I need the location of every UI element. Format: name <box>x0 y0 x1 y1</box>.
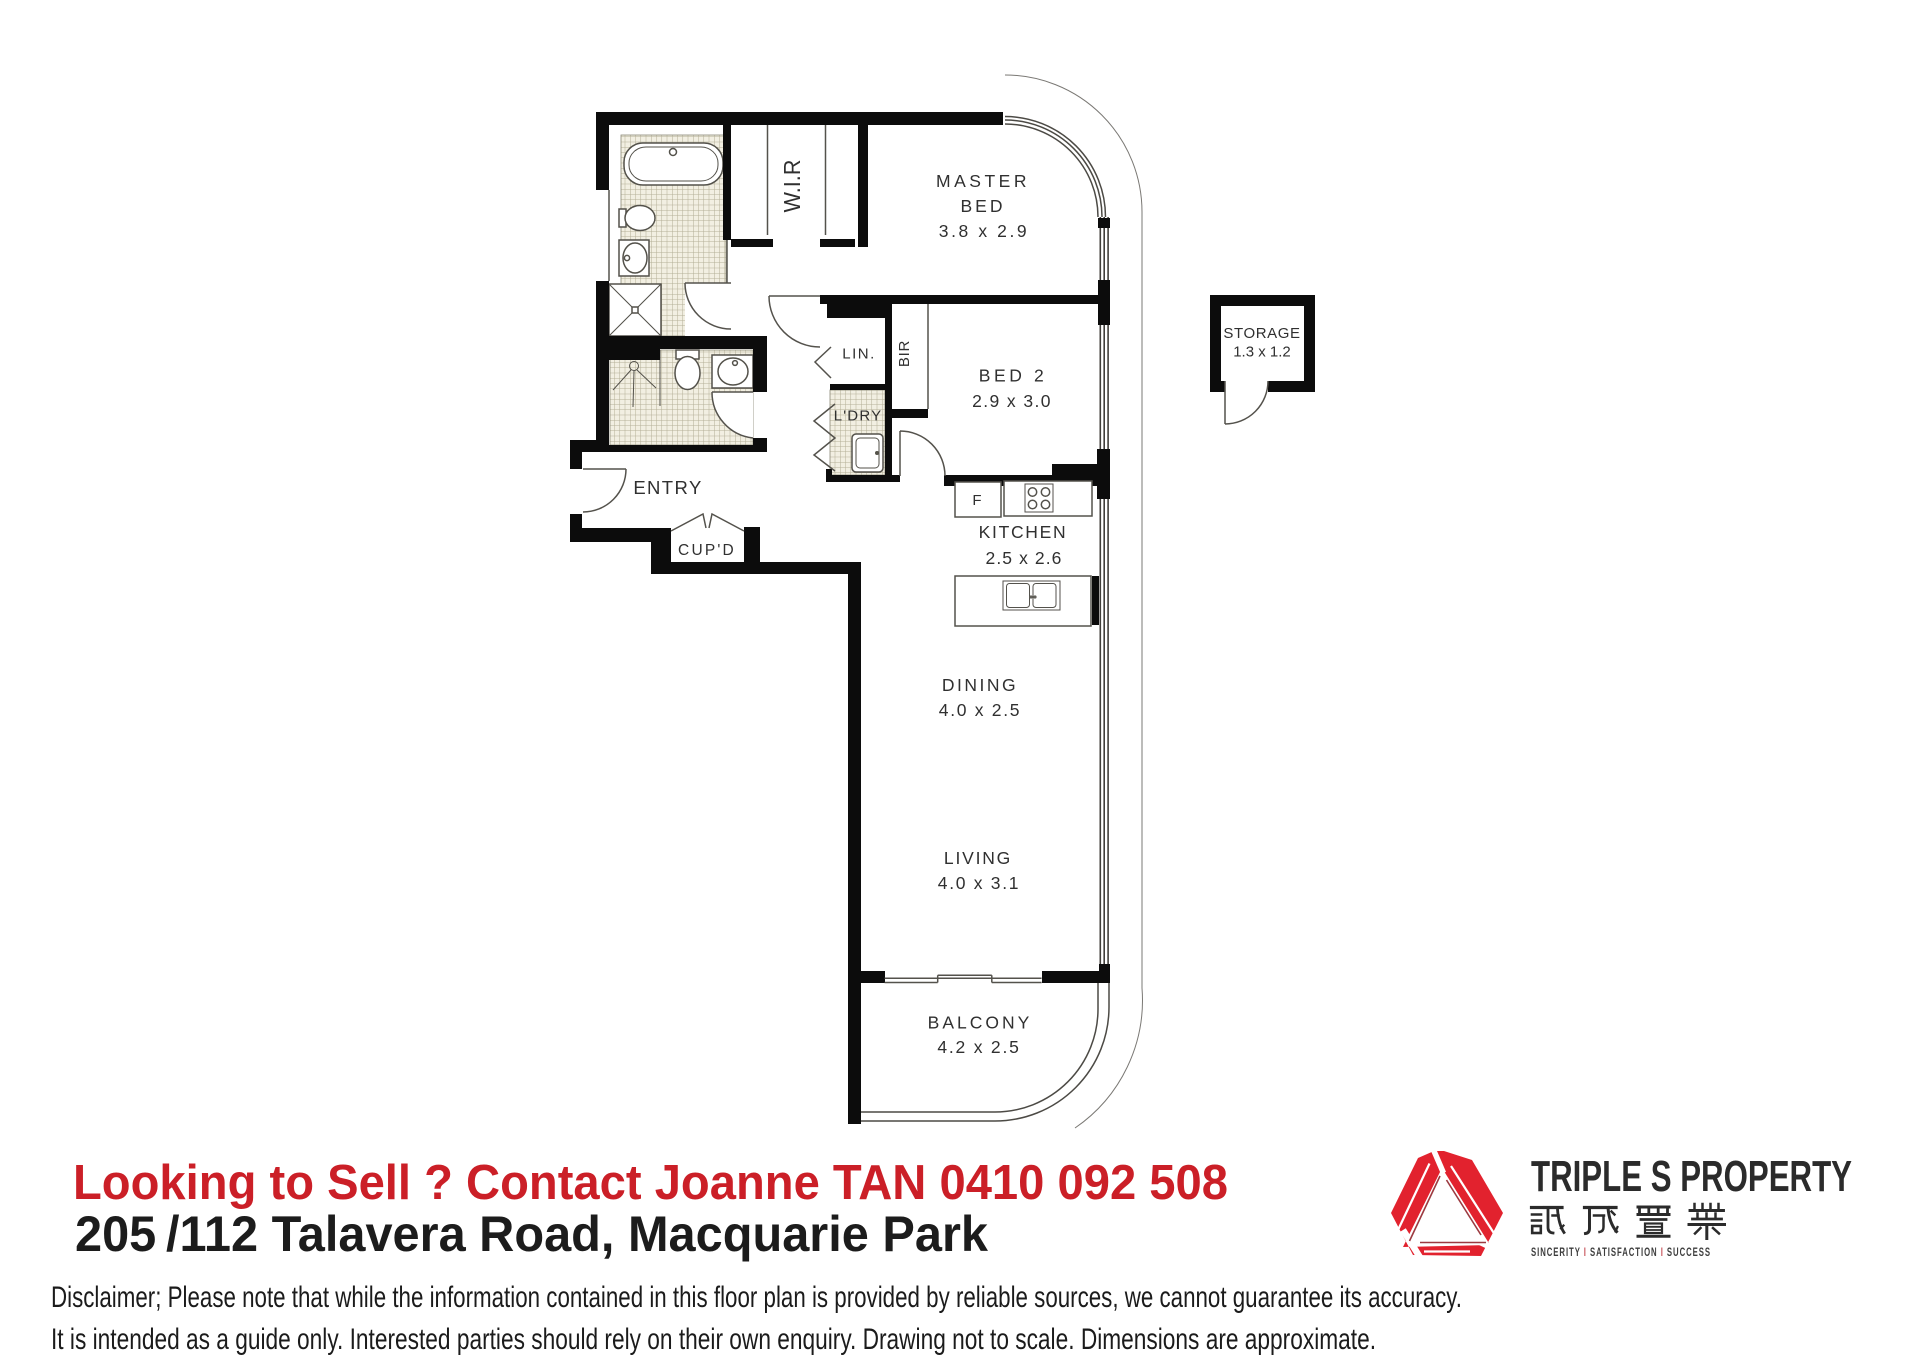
svg-text:205 /112 Talavera Road, Macqua: 205 /112 Talavera Road, Macquarie Park <box>75 1206 988 1262</box>
svg-text:F: F <box>972 492 981 509</box>
svg-text:L'DRY: L'DRY <box>834 408 883 425</box>
svg-text:4.0 x 2.5: 4.0 x 2.5 <box>939 700 1021 720</box>
svg-text:BIR: BIR <box>896 340 913 367</box>
svg-text:4.0 x 3.1: 4.0 x 3.1 <box>938 873 1020 893</box>
svg-text:2.9 x 3.0: 2.9 x 3.0 <box>972 391 1052 411</box>
svg-text:MASTER: MASTER <box>936 171 1030 191</box>
svg-text:2.5 x 2.6: 2.5 x 2.6 <box>985 548 1062 568</box>
svg-text:BALCONY: BALCONY <box>928 1013 1033 1033</box>
svg-text:CUP'D: CUP'D <box>678 542 736 559</box>
svg-text:Looking to Sell ? Contact Joan: Looking to Sell ? Contact Joanne TAN 041… <box>73 1156 1228 1210</box>
svg-text:STORAGE: STORAGE <box>1223 325 1300 342</box>
svg-text:4.2 x 2.5: 4.2 x 2.5 <box>937 1037 1020 1057</box>
svg-text:3.8 x 2.9: 3.8 x 2.9 <box>939 221 1030 241</box>
svg-text:Disclaimer; Please note that w: Disclaimer; Please note that while the i… <box>51 1281 1462 1314</box>
svg-text:LIVING: LIVING <box>944 848 1012 868</box>
svg-text:ENTRY: ENTRY <box>633 477 702 498</box>
svg-text:BED: BED <box>961 196 1006 216</box>
svg-text:LIN.: LIN. <box>842 346 876 363</box>
svg-text:TRIPLE S PROPERTY: TRIPLE S PROPERTY <box>1531 1152 1852 1201</box>
svg-text:KITCHEN: KITCHEN <box>979 522 1068 542</box>
svg-text:SINCERITY I SATISFACTION I SUC: SINCERITY I SATISFACTION I SUCCESS <box>1531 1247 1711 1259</box>
svg-text:It is intended as a guide only: It is intended as a guide only. Interest… <box>51 1323 1376 1356</box>
svg-text:DINING: DINING <box>942 675 1018 695</box>
svg-text:BED 2: BED 2 <box>979 366 1048 386</box>
svg-text:1.3 x 1.2: 1.3 x 1.2 <box>1233 344 1291 361</box>
svg-text:W.I.R: W.I.R <box>779 160 805 213</box>
